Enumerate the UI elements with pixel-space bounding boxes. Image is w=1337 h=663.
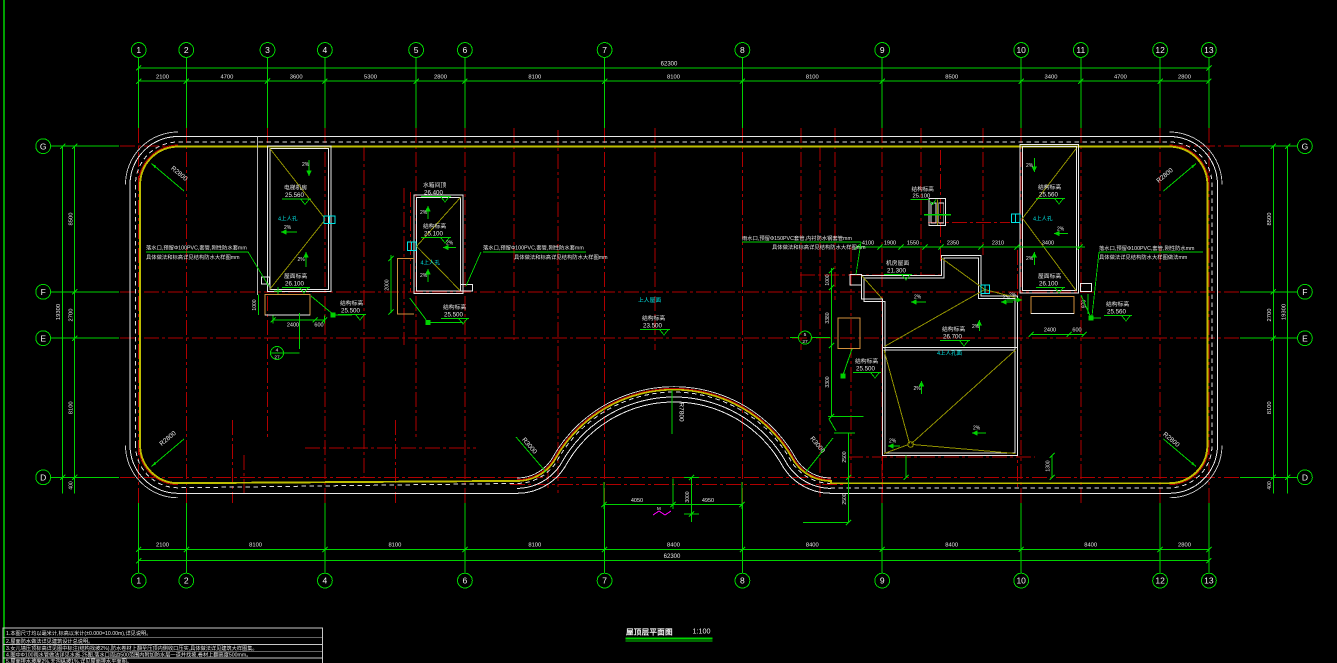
svg-text:8100: 8100 — [68, 401, 74, 414]
svg-text:4上人孔: 4上人孔 — [1033, 215, 1053, 223]
svg-text:电梯机房: 电梯机房 — [284, 184, 307, 192]
svg-text:2%: 2% — [914, 386, 922, 392]
svg-text:3400: 3400 — [1042, 240, 1054, 246]
svg-text:2000: 2000 — [385, 279, 391, 290]
svg-text:F: F — [41, 287, 46, 297]
svg-text:D: D — [40, 472, 46, 482]
svg-text:8500: 8500 — [68, 213, 74, 226]
svg-text:2310: 2310 — [992, 240, 1004, 246]
svg-text:4上人孔: 4上人孔 — [421, 259, 441, 267]
svg-text:25.500: 25.500 — [444, 312, 463, 319]
svg-text:结构标高: 结构标高 — [912, 185, 935, 193]
svg-text:2%: 2% — [298, 257, 306, 263]
svg-text:62300: 62300 — [664, 554, 681, 560]
svg-text:8100: 8100 — [388, 543, 401, 549]
svg-text:6: 6 — [463, 45, 468, 55]
svg-text:4: 4 — [323, 576, 328, 586]
svg-text:2%: 2% — [1009, 293, 1017, 299]
svg-text:机房屋面: 机房屋面 — [886, 259, 909, 267]
svg-text:4700: 4700 — [220, 75, 233, 81]
svg-text:26.100: 26.100 — [285, 281, 304, 288]
svg-text:600: 600 — [314, 323, 323, 329]
svg-text:屋顶层平面图: 屋顶层平面图 — [626, 628, 673, 637]
svg-text:2: 2 — [184, 45, 189, 55]
svg-text:G: G — [1302, 141, 1309, 151]
svg-text:26.700: 26.700 — [943, 334, 962, 341]
svg-text:G: G — [40, 141, 47, 151]
svg-text:8: 8 — [740, 576, 745, 586]
svg-text:8400: 8400 — [945, 543, 958, 549]
svg-text:400: 400 — [1267, 481, 1273, 490]
svg-text:600: 600 — [1072, 328, 1081, 334]
svg-text:7: 7 — [602, 45, 607, 55]
svg-text:2%: 2% — [1026, 163, 1034, 169]
svg-text:2%: 2% — [1026, 256, 1034, 262]
svg-text:2100: 2100 — [156, 543, 169, 549]
svg-text:3380: 3380 — [825, 312, 831, 323]
svg-text:2800: 2800 — [1178, 543, 1191, 549]
svg-text:F: F — [1302, 287, 1307, 297]
svg-text:2500: 2500 — [842, 451, 848, 462]
svg-text:2800: 2800 — [434, 75, 447, 81]
svg-text:2400: 2400 — [1044, 328, 1056, 334]
svg-text:11: 11 — [1076, 45, 1085, 55]
svg-text:3600: 3600 — [290, 75, 303, 81]
svg-text:8100: 8100 — [528, 543, 541, 549]
svg-text:5300: 5300 — [364, 75, 377, 81]
svg-text:7: 7 — [602, 576, 607, 586]
svg-text:2%: 2% — [420, 210, 428, 216]
svg-text:4700: 4700 — [1114, 75, 1127, 81]
svg-text:8400: 8400 — [667, 543, 680, 549]
svg-text:结构标高: 结构标高 — [942, 325, 965, 333]
svg-text:1300: 1300 — [1046, 460, 1052, 471]
svg-text:结构标高: 结构标高 — [340, 299, 363, 307]
svg-text:雨水口,预留Φ150PVC套管,内衬防水钢套管mm: 雨水口,预留Φ150PVC套管,内衬防水钢套管mm — [742, 234, 852, 242]
svg-text:2%: 2% — [420, 273, 428, 279]
svg-text:400: 400 — [68, 481, 74, 490]
svg-text:26.400: 26.400 — [424, 190, 443, 197]
svg-text:8100: 8100 — [806, 75, 819, 81]
svg-text:具体做法详见结构防水大样图做法mm: 具体做法详见结构防水大样图做法mm — [1099, 253, 1188, 261]
svg-text:上人屋面: 上人屋面 — [638, 296, 661, 304]
svg-text:1: 1 — [136, 45, 141, 55]
svg-text:1.本图尺寸均以毫米计,标高以米计(±0.000=10.00: 1.本图尺寸均以毫米计,标高以米计(±0.000=10.00m),详见说明。 — [6, 629, 151, 637]
svg-text:结构标高: 结构标高 — [1038, 183, 1061, 191]
svg-text:21.300: 21.300 — [887, 268, 906, 275]
svg-text:25.500: 25.500 — [341, 308, 360, 315]
svg-text:2%: 2% — [973, 426, 981, 432]
svg-text:4950: 4950 — [702, 498, 714, 504]
svg-text:12: 12 — [1155, 576, 1165, 586]
svg-text:62300: 62300 — [661, 62, 678, 68]
svg-text:9: 9 — [880, 576, 885, 586]
svg-text:1000: 1000 — [825, 274, 831, 285]
svg-text:2700: 2700 — [1267, 309, 1273, 322]
svg-text:4.图中Φ100雨水管做法详见水施-25图,落水口周边500: 4.图中Φ100雨水管做法详见水施-25图,落水口周边500范围内附加防水层一道… — [6, 651, 251, 659]
svg-text:8400: 8400 — [1084, 543, 1097, 549]
svg-text:4: 4 — [323, 45, 328, 55]
svg-text:19300: 19300 — [56, 304, 62, 320]
svg-text:E: E — [40, 333, 46, 343]
svg-text:25.560: 25.560 — [1107, 309, 1126, 316]
svg-text:8500: 8500 — [1267, 213, 1273, 226]
svg-text:25.560: 25.560 — [1039, 192, 1058, 199]
svg-text:具体做法和标高详见结构防水大样图mm: 具体做法和标高详见结构防水大样图mm — [772, 243, 866, 251]
svg-text:3000: 3000 — [685, 491, 691, 502]
svg-text:23.500: 23.500 — [643, 323, 662, 330]
svg-text:1900: 1900 — [884, 240, 896, 246]
svg-text:3.女儿墙压顶标高详见图中标注(结构找坡2%),防水卷材上翻: 3.女儿墙压顶标高详见图中标注(结构找坡2%),防水卷材上翻至压顶内侧收口压实,… — [6, 644, 258, 652]
svg-text:R7800: R7800 — [678, 402, 685, 422]
svg-text:1000: 1000 — [252, 299, 258, 310]
svg-text:6: 6 — [463, 576, 468, 586]
svg-text:D: D — [1302, 472, 1308, 482]
svg-text:8: 8 — [740, 45, 745, 55]
svg-text:13: 13 — [1204, 576, 1214, 586]
svg-text:27: 27 — [274, 355, 280, 361]
svg-text:25.100: 25.100 — [913, 194, 931, 200]
svg-text:8500: 8500 — [945, 75, 958, 81]
svg-text:结构标高: 结构标高 — [423, 222, 446, 230]
svg-text:结构标高: 结构标高 — [443, 303, 466, 311]
svg-text:4050: 4050 — [631, 498, 643, 504]
svg-text:27: 27 — [802, 339, 808, 345]
svg-text:落水口,预留Φ100PVC,套管,刚性防水套mm: 落水口,预留Φ100PVC,套管,刚性防水套mm — [146, 244, 247, 252]
svg-text:8100: 8100 — [528, 75, 541, 81]
svg-text:2500: 2500 — [842, 493, 848, 504]
svg-text:25.560: 25.560 — [285, 192, 304, 199]
svg-text:19300: 19300 — [1281, 304, 1287, 320]
svg-text:8100: 8100 — [667, 75, 680, 81]
svg-text:8400: 8400 — [806, 543, 819, 549]
svg-text:屋面标高: 屋面标高 — [1038, 272, 1061, 280]
svg-text:3300: 3300 — [825, 376, 831, 387]
svg-text:10: 10 — [1016, 576, 1026, 586]
svg-text:3400: 3400 — [1045, 75, 1058, 81]
svg-text:4: 4 — [276, 348, 279, 354]
svg-text:1:100: 1:100 — [693, 627, 711, 636]
svg-text:2%: 2% — [302, 162, 310, 168]
svg-text:屋面标高: 屋面标高 — [284, 272, 307, 280]
svg-text:E: E — [1302, 333, 1308, 343]
svg-text:3: 3 — [265, 45, 270, 55]
svg-text:2100: 2100 — [156, 75, 169, 81]
svg-text:8100: 8100 — [249, 543, 262, 549]
svg-text:13: 13 — [1204, 45, 1214, 55]
svg-text:2%: 2% — [1057, 227, 1065, 233]
svg-text:8100: 8100 — [1267, 401, 1273, 414]
svg-text:2: 2 — [184, 576, 189, 586]
svg-text:2%: 2% — [972, 324, 980, 330]
svg-text:4上人孔面: 4上人孔面 — [937, 349, 963, 357]
svg-text:5: 5 — [804, 332, 807, 338]
svg-text:9: 9 — [880, 45, 885, 55]
svg-text:2%: 2% — [889, 439, 897, 445]
svg-text:具体做法和标高详见结构防水大样图mm: 具体做法和标高详见结构防水大样图mm — [514, 253, 608, 261]
svg-text:1550: 1550 — [907, 240, 919, 246]
svg-text:1: 1 — [136, 576, 141, 586]
svg-text:5: 5 — [414, 45, 419, 55]
svg-text:2400: 2400 — [287, 323, 299, 329]
svg-text:4上人孔: 4上人孔 — [278, 215, 298, 223]
svg-text:结构标高: 结构标高 — [642, 314, 665, 322]
svg-text:落水口,预留Φ100PVC,套管,刚性防水mm: 落水口,预留Φ100PVC,套管,刚性防水mm — [1099, 244, 1195, 252]
svg-text:水箱间顶: 水箱间顶 — [423, 181, 446, 189]
svg-text:2%: 2% — [284, 225, 292, 231]
svg-text:10: 10 — [1016, 45, 1026, 55]
svg-text:2.屋面防水做法详见建筑设计总说明。: 2.屋面防水做法详见建筑设计总说明。 — [6, 637, 93, 645]
svg-text:结构标高: 结构标高 — [1106, 300, 1129, 308]
svg-text:具体做法和标高详见结构防水大样图mm: 具体做法和标高详见结构防水大样图mm — [146, 253, 240, 261]
svg-text:2350: 2350 — [947, 240, 959, 246]
svg-text:2700: 2700 — [68, 309, 74, 322]
svg-text:落水口,预留Φ100PVC,套管,刚性防水套mm: 落水口,预留Φ100PVC,套管,刚性防水套mm — [483, 244, 584, 252]
svg-text:M: M — [657, 506, 661, 511]
svg-text:2800: 2800 — [1178, 75, 1191, 81]
svg-text:26.100: 26.100 — [1039, 281, 1058, 288]
svg-text:25.500: 25.500 — [856, 366, 875, 373]
svg-text:2%: 2% — [914, 295, 922, 301]
svg-text:结构标高: 结构标高 — [855, 357, 878, 365]
svg-text:2%: 2% — [446, 241, 454, 247]
svg-text:25.100: 25.100 — [424, 231, 443, 238]
svg-text:12: 12 — [1155, 45, 1165, 55]
